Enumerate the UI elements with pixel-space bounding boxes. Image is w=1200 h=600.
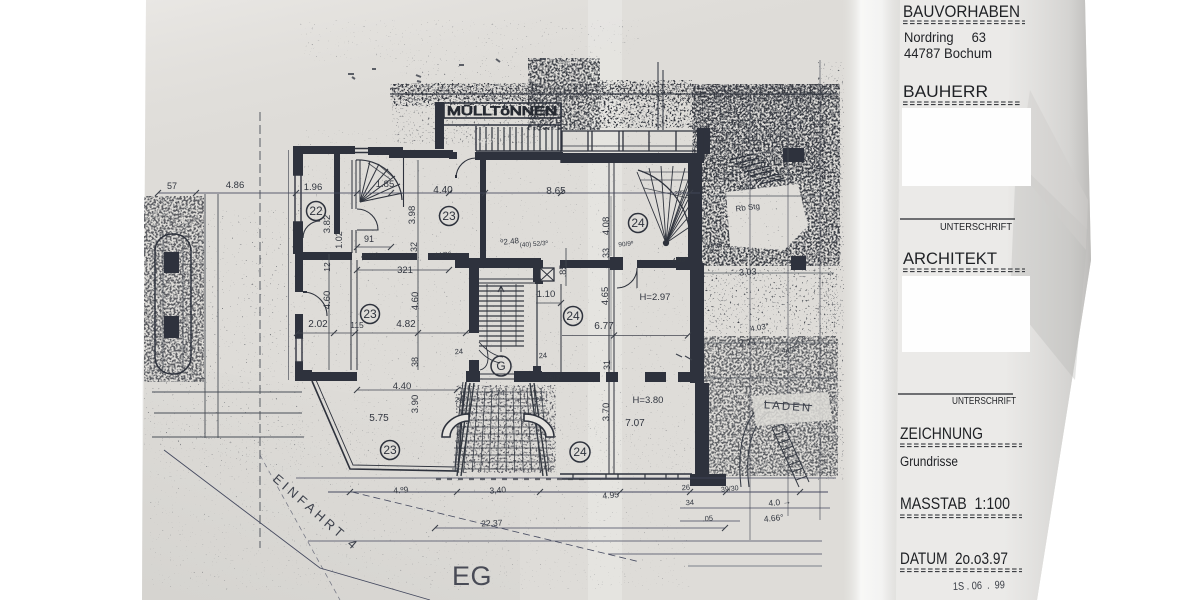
svg-text:MASSTAB 1:100: MASSTAB 1:100: [900, 495, 1010, 513]
svg-text:4.40: 4.40: [393, 381, 412, 392]
svg-text:DATUM 2o.o3.97: DATUM 2o.o3.97: [900, 550, 1008, 568]
svg-text:1S . 06 . 99: 1S . 06 . 99: [953, 579, 1005, 593]
svg-text:26: 26: [681, 483, 690, 493]
svg-text:57: 57: [167, 181, 177, 191]
svg-text:44787 Bochum: 44787 Bochum: [904, 46, 992, 61]
svg-text:3.70: 3.70: [601, 403, 612, 422]
svg-text:4.65: 4.65: [600, 287, 611, 306]
svg-text:24: 24: [566, 309, 580, 323]
svg-text:1.85: 1.85: [376, 179, 395, 190]
svg-text:3.98: 3.98: [407, 206, 418, 225]
svg-text:UNTERSCHRIFT: UNTERSCHRIFT: [952, 396, 1016, 407]
svg-text:22,37: 22,37: [481, 517, 503, 528]
svg-text:42/3º: 42/3º: [479, 138, 495, 146]
svg-text:H=2.97: H=2.97: [640, 292, 671, 303]
svg-text:MÜLLTöNNEN: MÜLLTöNNEN: [447, 106, 557, 118]
svg-text:2,1: 2,1: [795, 337, 805, 345]
svg-text:4.82: 4.82: [396, 319, 416, 330]
svg-text:8.65: 8.65: [546, 186, 566, 197]
svg-text:24: 24: [535, 395, 543, 404]
svg-text:3,40: 3,40: [489, 484, 506, 495]
svg-text:40/30: 40/30: [361, 252, 379, 260]
svg-text:4.60: 4.60: [410, 292, 421, 311]
svg-text:ZEICHNUNG: ZEICHNUNG: [900, 425, 983, 443]
svg-text:24: 24: [454, 347, 463, 357]
svg-text:24: 24: [631, 216, 645, 230]
svg-text:UNTERSCHRIFT: UNTERSCHRIFT: [940, 222, 1012, 233]
svg-text:22: 22: [309, 204, 323, 218]
svg-text:44/36: 44/36: [434, 251, 452, 259]
svg-text:24: 24: [573, 445, 587, 459]
svg-text:EG: EG: [452, 561, 492, 591]
svg-text:115: 115: [350, 320, 364, 330]
svg-text:1.02: 1.02: [334, 231, 344, 249]
svg-text:24: 24: [455, 395, 463, 404]
svg-text:23: 23: [442, 209, 456, 223]
svg-text:4.08: 4.08: [601, 217, 612, 236]
svg-text:4.º9: 4.º9: [393, 484, 409, 495]
svg-text:ARCHITEKT: ARCHITEKT: [903, 250, 997, 268]
svg-text:BAUHERR: BAUHERR: [903, 83, 988, 101]
svg-text:12: 12: [322, 262, 332, 272]
svg-text:32: 32: [409, 242, 419, 252]
svg-text:90/9º: 90/9º: [618, 240, 634, 248]
svg-text:2.02: 2.02: [308, 319, 328, 330]
svg-text:6.77: 6.77: [594, 321, 614, 332]
svg-text:2.71: 2.71: [739, 336, 757, 347]
svg-text:24: 24: [538, 351, 547, 361]
svg-text:G: G: [496, 359, 505, 373]
svg-text:H=3.80: H=3.80: [633, 395, 664, 406]
svg-text:4.40: 4.40: [433, 185, 453, 196]
svg-text:2,74: 2,74: [489, 388, 506, 398]
svg-text:7.07: 7.07: [625, 418, 645, 429]
svg-text:38: 38: [410, 357, 420, 367]
svg-text:1.10: 1.10: [537, 289, 556, 300]
svg-text:1.96: 1.96: [304, 182, 323, 193]
svg-text:45/3º: 45/3º: [672, 256, 688, 264]
svg-text:4.95: 4.95: [602, 489, 620, 501]
svg-text:23: 23: [383, 443, 397, 457]
svg-text:4.60: 4.60: [322, 291, 333, 310]
svg-text:BAUVORHABEN: BAUVORHABEN: [903, 3, 1020, 21]
svg-text:3.90: 3.90: [410, 395, 421, 414]
svg-text:Nordring 63: Nordring 63: [904, 30, 986, 45]
svg-text:321: 321: [397, 265, 413, 276]
svg-text:91: 91: [364, 234, 374, 244]
svg-text:Grundrisse: Grundrisse: [900, 454, 958, 469]
svg-text:34: 34: [685, 498, 694, 508]
svg-text:4.86: 4.86: [226, 180, 245, 191]
svg-text:33: 33: [601, 248, 611, 258]
svg-text:31: 31: [602, 360, 612, 370]
svg-text:23: 23: [363, 307, 377, 321]
svg-text:.05: .05: [702, 514, 713, 524]
svg-text:3.03: 3.03: [739, 266, 757, 277]
svg-text:5.75: 5.75: [369, 413, 389, 424]
svg-text:.85: .85: [558, 265, 568, 278]
svg-text:3.82: 3.82: [322, 215, 333, 234]
svg-text:4.66°: 4.66°: [763, 512, 784, 524]
svg-text:25/3º: 25/3º: [546, 374, 563, 382]
